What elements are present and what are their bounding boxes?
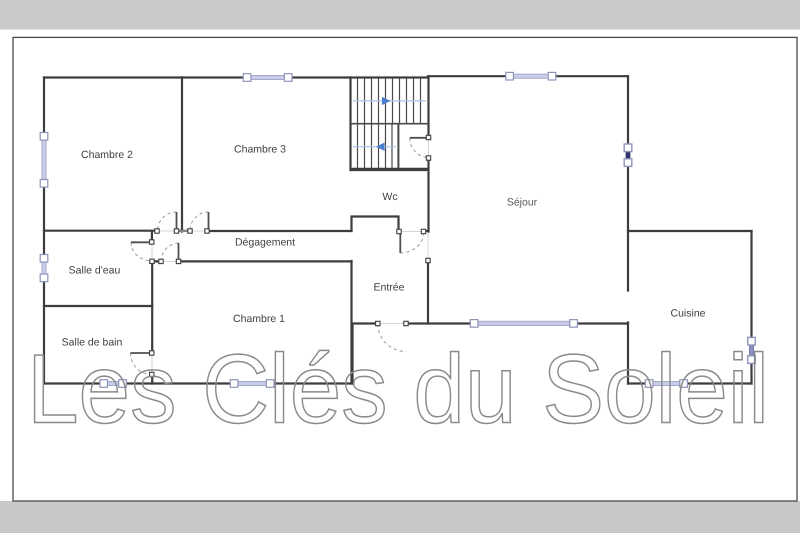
svg-text:Salle d'eau: Salle d'eau [69,265,121,277]
svg-text:Cuisine: Cuisine [670,308,705,320]
svg-text:Dégagement: Dégagement [235,237,295,249]
svg-text:Chambre 1: Chambre 1 [233,313,285,325]
svg-text:Chambre 2: Chambre 2 [81,149,133,161]
svg-text:Les Clés du Soleil: Les Clés du Soleil [27,334,769,444]
svg-text:Séjour: Séjour [507,197,538,209]
svg-text:Wc: Wc [382,191,397,203]
svg-text:Chambre 3: Chambre 3 [234,144,286,156]
svg-text:Entrée: Entrée [374,282,405,294]
